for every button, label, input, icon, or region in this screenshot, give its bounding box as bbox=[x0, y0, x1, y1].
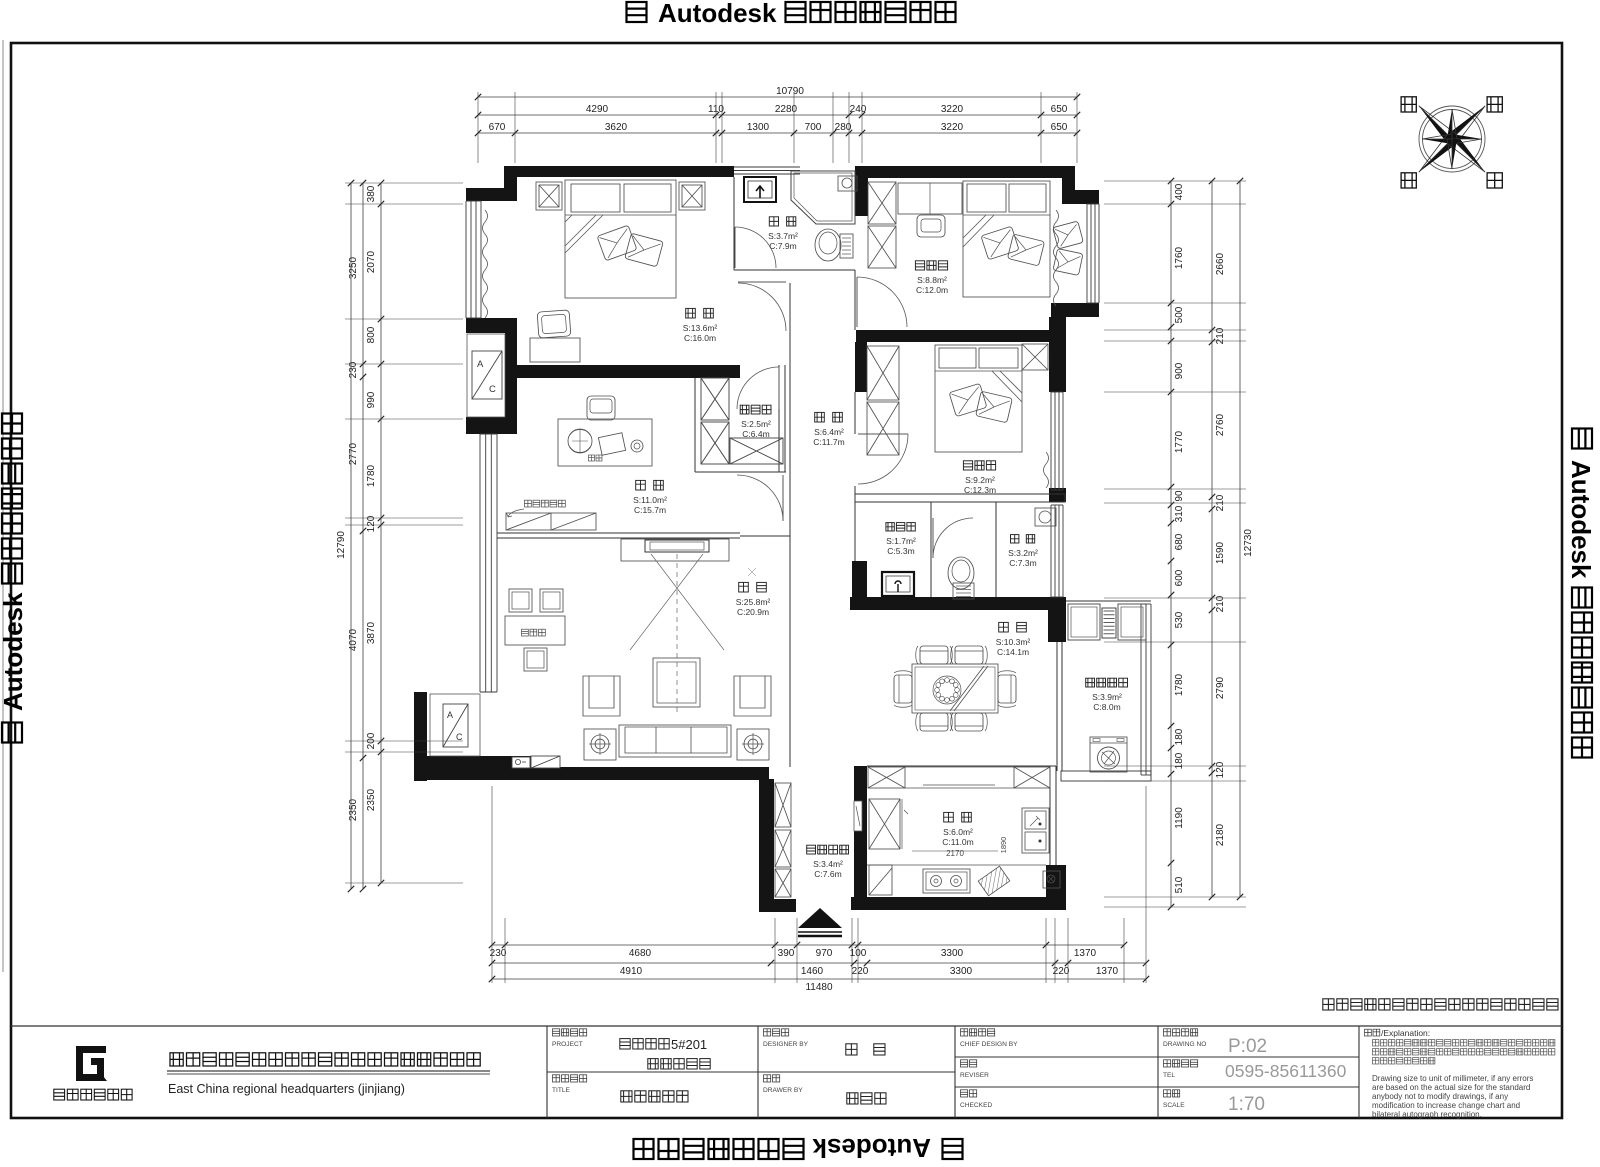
svg-text:1590: 1590 bbox=[1215, 541, 1226, 564]
svg-text:S:3.2m²: S:3.2m² bbox=[1008, 548, 1038, 558]
svg-text:C:8.0m: C:8.0m bbox=[1093, 702, 1120, 712]
svg-text:Autodesk: Autodesk bbox=[0, 592, 28, 711]
svg-text:240: 240 bbox=[850, 104, 867, 115]
svg-text:11480: 11480 bbox=[805, 982, 833, 993]
svg-text:800: 800 bbox=[366, 326, 377, 343]
svg-text:4680: 4680 bbox=[629, 948, 652, 959]
svg-text:1760: 1760 bbox=[1174, 246, 1185, 269]
svg-text:600: 600 bbox=[1174, 569, 1185, 586]
svg-text:2350: 2350 bbox=[348, 798, 359, 821]
svg-text:anybody not to modify drawings: anybody not to modify drawings, if any bbox=[1372, 1092, 1508, 1101]
svg-text:S:3.7m²: S:3.7m² bbox=[768, 231, 798, 241]
svg-text:3870: 3870 bbox=[366, 621, 377, 644]
svg-text:900: 900 bbox=[1174, 362, 1185, 379]
svg-text:CHECKED: CHECKED bbox=[960, 1102, 992, 1109]
svg-text:3620: 3620 bbox=[605, 122, 628, 133]
svg-text:180: 180 bbox=[1174, 728, 1185, 745]
svg-text:670: 670 bbox=[489, 122, 506, 133]
svg-text:C:14.1m: C:14.1m bbox=[997, 647, 1029, 657]
svg-text:0595-85611360: 0595-85611360 bbox=[1225, 1061, 1347, 1081]
svg-text:Autodesk: Autodesk bbox=[812, 1133, 931, 1163]
svg-text:are based on the actual size f: are based on the actual size for the sta… bbox=[1372, 1083, 1530, 1092]
svg-text:3250: 3250 bbox=[348, 256, 359, 279]
svg-text:700: 700 bbox=[805, 122, 822, 133]
svg-text:C:16.0m: C:16.0m bbox=[684, 333, 716, 343]
svg-text:DRAWER BY: DRAWER BY bbox=[763, 1087, 803, 1094]
svg-text:S:6.4m²: S:6.4m² bbox=[814, 427, 844, 437]
svg-text:CHIEF DESIGN BY: CHIEF DESIGN BY bbox=[960, 1041, 1018, 1048]
svg-text:3220: 3220 bbox=[941, 104, 964, 115]
svg-text:1370: 1370 bbox=[1074, 948, 1097, 959]
svg-text:220: 220 bbox=[852, 966, 869, 977]
svg-text:bilateral autograph recognitio: bilateral autograph recognition. bbox=[1372, 1110, 1482, 1119]
svg-text:510: 510 bbox=[1174, 876, 1185, 893]
svg-text:TEL: TEL bbox=[1163, 1072, 1175, 1079]
svg-text:PROJECT: PROJECT bbox=[552, 1041, 583, 1048]
svg-text:1460: 1460 bbox=[801, 966, 824, 977]
svg-text:REVISER: REVISER bbox=[960, 1072, 989, 1079]
svg-text:970: 970 bbox=[816, 948, 833, 959]
svg-text:1780: 1780 bbox=[1174, 673, 1185, 696]
svg-text:180: 180 bbox=[1174, 752, 1185, 769]
svg-text:East China regional headquarte: East China regional headquarters (jinjia… bbox=[168, 1082, 405, 1096]
svg-text:500: 500 bbox=[1174, 306, 1185, 323]
svg-text:2790: 2790 bbox=[1215, 676, 1226, 699]
svg-text:S:1.7m²: S:1.7m² bbox=[886, 536, 916, 546]
svg-text:2180: 2180 bbox=[1215, 823, 1226, 846]
svg-text:1780: 1780 bbox=[366, 464, 377, 487]
svg-text:A: A bbox=[477, 359, 484, 370]
svg-text:C:7.6m: C:7.6m bbox=[814, 869, 841, 879]
svg-text:C:7.3m: C:7.3m bbox=[1009, 558, 1036, 568]
svg-text:S:8.8m²: S:8.8m² bbox=[917, 275, 947, 285]
svg-text:C:7.9m: C:7.9m bbox=[769, 241, 796, 251]
svg-text:1:70: 1:70 bbox=[1228, 1094, 1265, 1115]
svg-text:4910: 4910 bbox=[620, 966, 643, 977]
svg-text:1300: 1300 bbox=[747, 122, 770, 133]
svg-text:3220: 3220 bbox=[941, 122, 964, 133]
svg-text:1370: 1370 bbox=[1096, 966, 1119, 977]
svg-text:380: 380 bbox=[366, 185, 377, 202]
svg-text:DESIGNER BY: DESIGNER BY bbox=[763, 1041, 809, 1048]
svg-text:modification to increase chang: modification to increase change chart an… bbox=[1372, 1101, 1520, 1110]
svg-text:C:12.0m: C:12.0m bbox=[916, 285, 948, 295]
svg-text:2350: 2350 bbox=[366, 788, 377, 811]
svg-text:400: 400 bbox=[1174, 183, 1185, 200]
svg-text:TITLE: TITLE bbox=[552, 1087, 571, 1094]
svg-text:S:2.5m²: S:2.5m² bbox=[741, 419, 771, 429]
svg-text:SCALE: SCALE bbox=[1163, 1102, 1185, 1109]
svg-text:S:11.0m²: S:11.0m² bbox=[633, 495, 667, 505]
svg-text:C: C bbox=[489, 384, 496, 395]
svg-text:C:11.7m: C:11.7m bbox=[813, 437, 845, 447]
svg-text:3300: 3300 bbox=[950, 966, 973, 977]
svg-text:3300: 3300 bbox=[941, 948, 964, 959]
svg-text:12730: 12730 bbox=[1243, 529, 1254, 557]
svg-text:C:20.9m: C:20.9m bbox=[737, 607, 769, 617]
svg-text:1890: 1890 bbox=[999, 837, 1008, 854]
svg-text:10790: 10790 bbox=[776, 86, 804, 97]
svg-text:/Explanation:: /Explanation: bbox=[1381, 1028, 1430, 1038]
svg-text:Drawing size to unit of millim: Drawing size to unit of millimeter, if a… bbox=[1372, 1074, 1533, 1083]
svg-text:1190: 1190 bbox=[1174, 807, 1185, 829]
svg-text:Autodesk: Autodesk bbox=[1566, 460, 1596, 579]
svg-text:650: 650 bbox=[1051, 122, 1068, 133]
svg-text:S:3.4m²: S:3.4m² bbox=[813, 859, 843, 869]
svg-text:S:25.8m²: S:25.8m² bbox=[736, 597, 771, 607]
svg-text:990: 990 bbox=[366, 391, 377, 408]
svg-text:Autodesk: Autodesk bbox=[658, 0, 777, 28]
svg-text:C:5.3m: C:5.3m bbox=[887, 546, 914, 556]
svg-text:310: 310 bbox=[1174, 505, 1185, 522]
svg-text:C: C bbox=[456, 732, 463, 742]
svg-text:12790: 12790 bbox=[336, 531, 347, 559]
svg-text:2070: 2070 bbox=[366, 250, 377, 273]
svg-text:DRAWING NO: DRAWING NO bbox=[1163, 1041, 1206, 1048]
svg-text:2760: 2760 bbox=[1215, 413, 1226, 436]
svg-text:A: A bbox=[447, 710, 453, 720]
svg-text:1770: 1770 bbox=[1174, 430, 1185, 453]
svg-text:C:12.3m: C:12.3m bbox=[964, 485, 996, 495]
svg-text:C:15.7m: C:15.7m bbox=[634, 505, 666, 515]
svg-text:S:10.3m²: S:10.3m² bbox=[996, 637, 1031, 647]
svg-text:2660: 2660 bbox=[1215, 252, 1226, 275]
svg-text:90: 90 bbox=[1174, 490, 1185, 502]
svg-text:120: 120 bbox=[1215, 761, 1226, 778]
svg-text:C:6.4m: C:6.4m bbox=[742, 429, 769, 439]
svg-text:2770: 2770 bbox=[348, 442, 359, 465]
svg-text:390: 390 bbox=[778, 948, 795, 959]
svg-text:4290: 4290 bbox=[586, 104, 609, 115]
svg-text:650: 650 bbox=[1051, 104, 1068, 115]
svg-text:P:02: P:02 bbox=[1228, 1036, 1267, 1057]
svg-text:S:13.6m²: S:13.6m² bbox=[683, 323, 718, 333]
svg-text:530: 530 bbox=[1174, 611, 1185, 628]
svg-text:S:3.9m²: S:3.9m² bbox=[1092, 692, 1122, 702]
svg-text:5#201: 5#201 bbox=[671, 1037, 707, 1052]
svg-text:2170: 2170 bbox=[946, 849, 964, 858]
svg-text:S:9.2m²: S:9.2m² bbox=[965, 475, 995, 485]
svg-text:4070: 4070 bbox=[348, 628, 359, 651]
svg-text:C:11.0m: C:11.0m bbox=[942, 837, 974, 847]
svg-text:680: 680 bbox=[1174, 533, 1185, 550]
svg-text:S:6.0m²: S:6.0m² bbox=[943, 827, 973, 837]
